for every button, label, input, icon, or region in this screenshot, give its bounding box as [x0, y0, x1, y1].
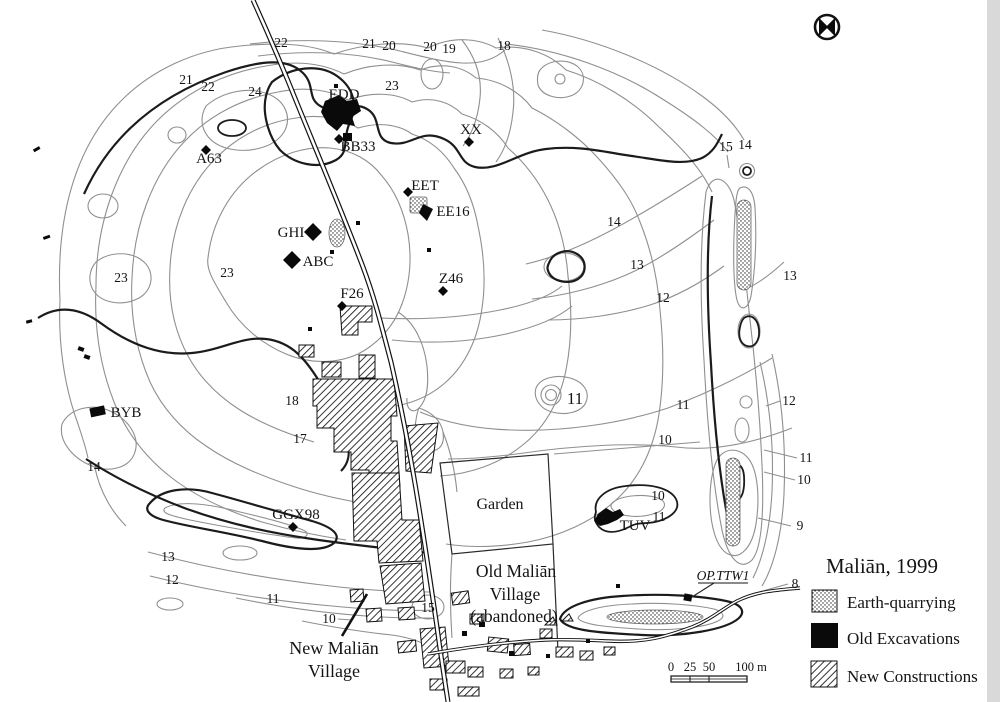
- legend-label-old-excavations: Old Excavations: [847, 629, 960, 648]
- contour-line: [740, 396, 752, 408]
- contour-line: [421, 59, 443, 89]
- village-structure: [446, 661, 465, 673]
- edge-tick: [26, 319, 33, 323]
- village-structure: [562, 614, 573, 621]
- contour-number: 19: [442, 41, 456, 56]
- earth-quarrying-patch: [607, 610, 703, 624]
- scale-tick-0: 0: [668, 660, 674, 674]
- contour-line: [420, 358, 772, 430]
- index-contour: [218, 120, 246, 136]
- small-mark: [616, 584, 620, 588]
- scale-tick-50: 50: [703, 660, 716, 674]
- excavation-xx: [464, 137, 474, 147]
- old-village-label-line2: Village: [490, 584, 541, 604]
- excavation-z46: [438, 286, 448, 296]
- map-page: 22 21 20 20 19 18 21 22 24 23 23 23 15 1…: [0, 0, 1000, 702]
- village-structure: [458, 687, 479, 696]
- contour-number: 12: [782, 393, 796, 408]
- legend-swatch-new-constructions: [811, 661, 837, 687]
- new-construction-block: [340, 306, 372, 335]
- contour-line: [170, 268, 314, 442]
- edge-tick: [43, 235, 51, 240]
- site-label-op-ttw1: OP.TTW1: [697, 568, 750, 583]
- contour-number: 18: [497, 38, 511, 53]
- site-label-a63: A63: [196, 151, 222, 167]
- contour-line: [380, 286, 562, 319]
- contour-line: [448, 428, 792, 459]
- contour-number: 15: [421, 600, 435, 615]
- site-label-f26: F26: [340, 286, 364, 302]
- contour-number: 10: [651, 488, 665, 503]
- legend-swatch-earth-quarrying: [812, 590, 837, 612]
- contour-line: [555, 74, 565, 84]
- contour-line: [398, 312, 428, 411]
- village-structure: [604, 647, 615, 655]
- site-label-abc: ABC: [303, 254, 334, 270]
- site-label-eet: EET: [411, 178, 439, 194]
- contour-number: 14: [607, 214, 621, 229]
- small-mark: [356, 221, 360, 225]
- contour-line: [168, 127, 186, 143]
- contour-number: 12: [656, 290, 670, 305]
- contour-number: 18: [285, 393, 299, 408]
- contour-line: [740, 164, 755, 179]
- site-label-ghi: GHI: [278, 225, 305, 241]
- site-label-z46: Z46: [439, 271, 464, 287]
- site-label-ggx98: GGX98: [272, 507, 320, 523]
- contour-line: [223, 546, 257, 560]
- contour-line: [532, 220, 714, 299]
- small-mark: [427, 248, 431, 252]
- contour-line: [60, 300, 88, 458]
- label-leader-line: [764, 450, 797, 458]
- north-symbol: [815, 15, 839, 39]
- village-structure: [398, 640, 417, 653]
- contour-number: 14: [738, 137, 752, 152]
- edge-tick: [77, 346, 84, 352]
- contour-number: 20: [382, 38, 396, 53]
- contour-number: 11: [653, 509, 666, 524]
- new-village-label-line2: Village: [308, 661, 360, 681]
- op-ttw1-leader: [692, 583, 714, 597]
- edge-tick: [33, 146, 41, 152]
- contour-number: 12: [165, 572, 179, 587]
- contour-line: [554, 442, 700, 454]
- contour-number: 11: [677, 397, 690, 412]
- contour-number: 14: [87, 459, 101, 474]
- contour-number: 10: [322, 611, 336, 626]
- scale-tick-25: 25: [684, 660, 697, 674]
- contour-number: 13: [783, 268, 797, 283]
- label-leader-line: [764, 472, 795, 480]
- village-structure: [528, 667, 539, 675]
- contour-number: 9: [797, 518, 804, 533]
- label-leader-line: [338, 619, 352, 620]
- contour-line: [544, 253, 584, 281]
- label-leader-line: [727, 155, 729, 168]
- contour-number: 10: [797, 472, 811, 487]
- contour-number: 20: [423, 39, 437, 54]
- contour-number: 11: [567, 389, 583, 408]
- contour-line: [735, 418, 749, 442]
- edge-tick: [83, 354, 90, 360]
- old-village-label-line3: (abandoned): [470, 606, 558, 626]
- contour-line: [537, 61, 583, 98]
- contour-line: [506, 44, 728, 152]
- legend-title: Maliān, 1999: [826, 554, 938, 578]
- label-leader-line: [758, 518, 791, 526]
- new-construction-block: [352, 473, 423, 563]
- contour-line: [541, 385, 561, 405]
- contour-number: 23: [220, 265, 234, 280]
- contour-number: 21: [362, 36, 376, 51]
- new-construction-block: [398, 607, 415, 620]
- earth-quarrying-patch: [726, 458, 740, 546]
- contour-number: 13: [161, 549, 175, 564]
- contour-number: 15: [719, 139, 733, 154]
- new-construction-block: [359, 355, 375, 378]
- contour-number: 23: [114, 270, 128, 285]
- contour-number: 21: [179, 72, 193, 87]
- village-structure: [580, 651, 593, 660]
- new-construction-block: [420, 627, 449, 668]
- excavation-ghi: [304, 223, 322, 241]
- village-structure: [556, 647, 573, 657]
- garden-label: Garden: [476, 496, 523, 513]
- small-mark: [546, 654, 550, 658]
- village-structure: [468, 667, 483, 677]
- new-construction-block: [366, 608, 382, 622]
- site-label-ee16: EE16: [436, 204, 470, 220]
- contour-line: [542, 30, 744, 140]
- scale-bar: 0 25 50 100 m: [668, 660, 767, 682]
- village-structure: [540, 629, 552, 638]
- village-structure: [514, 643, 531, 655]
- small-mark: [308, 327, 312, 331]
- legend: Maliān, 1999 Earth-quarrying Old Excavat…: [811, 554, 978, 687]
- site-label-xx: XX: [460, 122, 482, 138]
- contour-line: [95, 468, 126, 526]
- index-contour: [743, 167, 751, 175]
- legend-swatch-old-excavations: [811, 623, 838, 648]
- index-contour: [708, 196, 728, 520]
- new-village-label-line1: New Maliān: [289, 638, 378, 658]
- old-village-label-line1: Old Maliān: [476, 561, 556, 581]
- scale-tick-100m: 100 m: [735, 660, 767, 674]
- small-mark: [586, 639, 590, 643]
- small-mark: [509, 651, 514, 656]
- contour-number: 22: [274, 35, 288, 50]
- index-contour: [739, 316, 759, 346]
- site-label-tuv: TUV: [620, 518, 651, 534]
- contour-number: 10: [658, 432, 672, 447]
- map-canvas: 22 21 20 20 19 18 21 22 24 23 23 23 15 1…: [0, 0, 1000, 702]
- small-mark: [462, 631, 467, 636]
- contour-number: 17: [293, 431, 307, 446]
- new-construction-block: [299, 345, 314, 357]
- contour-line: [88, 194, 118, 218]
- village-structure: [500, 669, 513, 678]
- contour-number: 13: [630, 257, 644, 272]
- site-label-edd: EDD: [329, 87, 360, 103]
- site-label-bb33: BB33: [340, 139, 375, 155]
- excavation-abc: [283, 251, 301, 269]
- excavation-op-ttw1: [683, 593, 692, 601]
- contour-number: 8: [792, 576, 799, 591]
- legend-label-earth-quarrying: Earth-quarrying: [847, 593, 956, 612]
- contour-line: [548, 266, 724, 320]
- contour-line: [546, 390, 557, 401]
- contour-line: [157, 598, 183, 610]
- new-construction-block: [313, 379, 400, 487]
- contour-number: 22: [201, 79, 215, 94]
- site-label-byb: BYB: [111, 405, 142, 421]
- earth-quarrying-patch: [329, 219, 345, 247]
- earth-quarrying-patch: [737, 200, 751, 290]
- contour-number: 23: [385, 78, 399, 93]
- contour-number: 11: [800, 450, 813, 465]
- new-construction-block: [380, 563, 425, 604]
- legend-label-new-constructions: New Constructions: [847, 667, 978, 686]
- village-structure: [451, 591, 470, 605]
- scan-edge-band: [987, 0, 1000, 702]
- contour-number: 24: [248, 84, 262, 99]
- contour-number: 11: [267, 591, 280, 606]
- new-construction-block: [322, 362, 341, 377]
